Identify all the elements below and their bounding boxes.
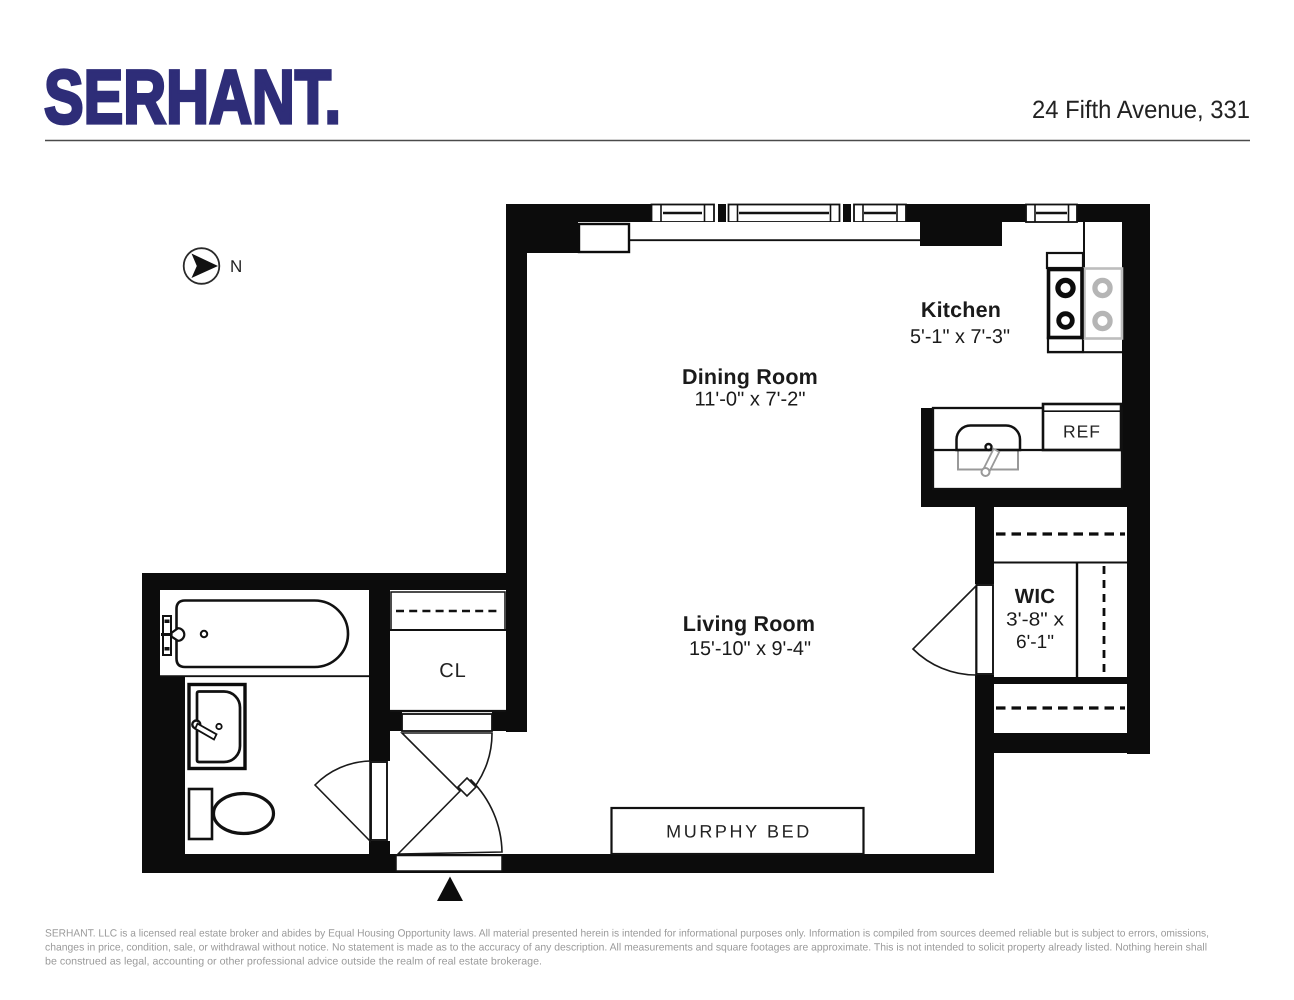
svg-text:SERHANT.: SERHANT. — [44, 55, 341, 140]
svg-text:N: N — [230, 257, 242, 276]
svg-text:6'-1": 6'-1" — [1016, 632, 1054, 653]
svg-text:5'-1" x 7'-3": 5'-1" x 7'-3" — [910, 326, 1010, 348]
svg-text:11'-0" x 7'-2": 11'-0" x 7'-2" — [695, 389, 806, 411]
svg-text:SERHANT. LLC is a licensed rea: SERHANT. LLC is a licensed real estate b… — [45, 928, 1209, 940]
svg-text:3'-8" x: 3'-8" x — [1006, 610, 1065, 631]
svg-text:Dining Room: Dining Room — [682, 365, 818, 389]
svg-text:changes in price, condition, s: changes in price, condition, sale, or wi… — [45, 942, 1207, 954]
svg-text:be construed as legal, account: be construed as legal, accounting or oth… — [45, 956, 542, 968]
svg-text:CL: CL — [439, 660, 467, 682]
svg-text:WIC: WIC — [1015, 585, 1055, 608]
svg-text:15'-10" x 9'-4": 15'-10" x 9'-4" — [689, 638, 811, 660]
svg-text:Kitchen: Kitchen — [921, 298, 1001, 322]
svg-text:24 Fifth Avenue, 331: 24 Fifth Avenue, 331 — [1032, 96, 1250, 124]
svg-text:Living Room: Living Room — [683, 612, 815, 636]
svg-text:REF: REF — [1063, 422, 1101, 442]
svg-text:MURPHY BED: MURPHY BED — [666, 822, 812, 842]
